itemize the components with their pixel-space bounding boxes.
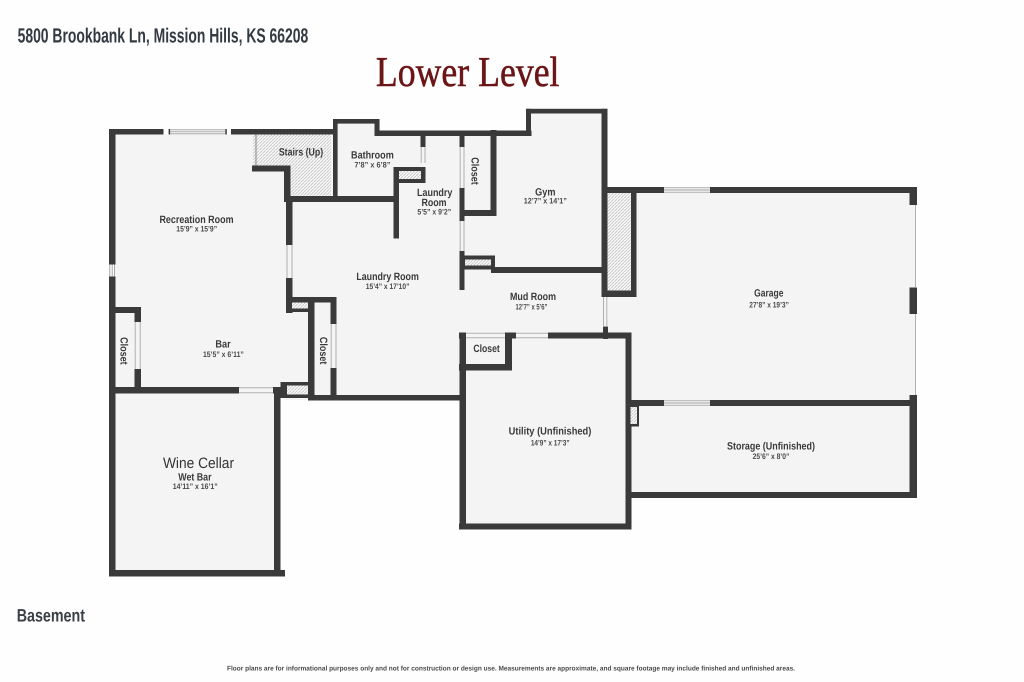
svg-text:Closet: Closet [118, 337, 130, 365]
svg-text:7’8” x 6’8”: 7’8” x 6’8” [354, 160, 390, 169]
svg-text:Mud Room: Mud Room [510, 291, 556, 303]
svg-text:12’7” x 14’1”: 12’7” x 14’1” [524, 197, 567, 206]
svg-text:14’11” x 16’1”: 14’11” x 16’1” [173, 482, 218, 491]
svg-text:14’9” x 17’3”: 14’9” x 17’3” [531, 439, 570, 448]
svg-text:15’9” x 15’9”: 15’9” x 15’9” [176, 225, 217, 234]
svg-text:12’7” x 5’6”: 12’7” x 5’6” [516, 303, 548, 312]
svg-text:Bar: Bar [215, 339, 230, 351]
svg-text:5800 Brookbank Ln, Mission Hil: 5800 Brookbank Ln, Mission Hills, KS 662… [18, 25, 309, 48]
svg-text:Closet: Closet [469, 157, 481, 185]
svg-text:27’8” x 19’3”: 27’8” x 19’3” [749, 301, 789, 310]
svg-text:Lower Level: Lower Level [376, 49, 560, 96]
svg-text:5’5” x 9’2”: 5’5” x 9’2” [417, 207, 451, 216]
svg-text:Floor plans are for informatio: Floor plans are for informational purpos… [227, 665, 795, 672]
svg-text:Garage: Garage [754, 287, 783, 299]
svg-text:15’5” x 6’11”: 15’5” x 6’11” [203, 350, 244, 359]
svg-text:Basement: Basement [17, 605, 85, 625]
svg-text:Closet: Closet [473, 343, 500, 355]
svg-text:Storage (Unfinished): Storage (Unfinished) [727, 440, 815, 452]
svg-text:15’4” x 17’10”: 15’4” x 17’10” [366, 282, 410, 291]
svg-text:Stairs (Up): Stairs (Up) [279, 146, 323, 158]
svg-text:Closet: Closet [317, 337, 329, 365]
svg-text:Wine Cellar: Wine Cellar [163, 455, 234, 472]
svg-text:25’6” x 8’0”: 25’6” x 8’0” [753, 452, 790, 461]
svg-text:Utility (Unfinished): Utility (Unfinished) [509, 426, 592, 438]
